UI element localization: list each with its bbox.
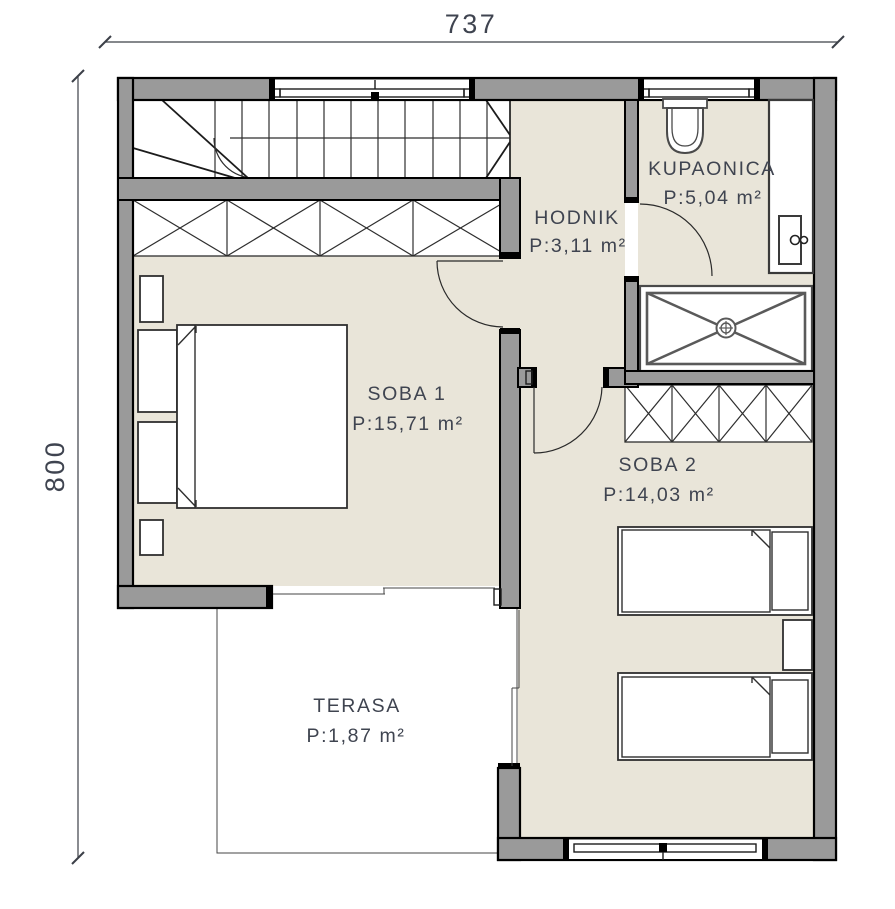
wardrobe-soba1-icon (133, 200, 508, 256)
single-bed-1-icon (618, 527, 812, 615)
toilet-icon (663, 99, 707, 153)
single-bed-2-icon (618, 673, 812, 760)
nightstand-icon (138, 422, 177, 503)
room-label-kupaonica: KUPAONICA (648, 158, 776, 180)
room-label-terasa: TERASA (313, 695, 401, 717)
room-label-hodnik: HODNIK (534, 207, 619, 229)
wardrobe-soba2-icon (625, 385, 812, 442)
dimension-height-label: 800 (40, 440, 70, 493)
vanity-sink-icon (769, 100, 813, 273)
stairs-outline (133, 100, 510, 178)
window-bottom-icon (563, 838, 768, 860)
room-label-soba2: SOBA 2 (619, 454, 698, 476)
stairs (133, 100, 510, 178)
room-label-soba1: SOBA 1 (368, 383, 447, 405)
floor-plan-page: 737 800 HODNIK P:3,11 m² KUPAONICA P:5,0… (0, 0, 895, 909)
room-area-terasa: P:1,87 m² (307, 725, 406, 747)
room-area-kupaonica: P:5,04 m² (664, 187, 763, 209)
cabinet-icon (140, 520, 163, 555)
shower-tray-icon (640, 286, 812, 371)
nightstand-icon (138, 330, 177, 412)
room-area-hodnik: P:3,11 m² (529, 235, 627, 257)
nightstand-icon (783, 620, 812, 670)
dimension-width-label: 737 (445, 9, 498, 39)
cabinet-icon (140, 276, 163, 322)
room-area-soba1: P:15,71 m² (352, 413, 463, 435)
floor-plan-drawing: 737 800 HODNIK P:3,11 m² KUPAONICA P:5,0… (0, 0, 895, 909)
window-top-1-icon (269, 78, 475, 100)
room-area-soba2: P:14,03 m² (603, 484, 714, 506)
window-top-2-icon (638, 78, 760, 100)
